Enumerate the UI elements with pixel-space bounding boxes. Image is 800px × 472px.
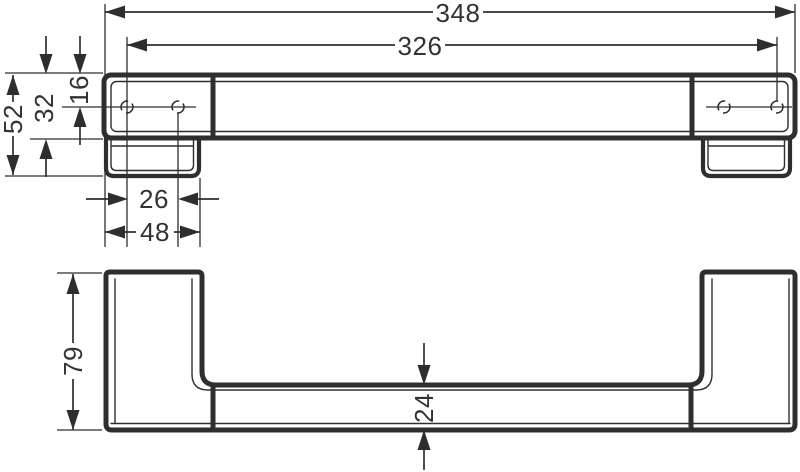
arrowhead-up [7, 75, 20, 95]
dim-52: 52 [0, 75, 28, 175]
arrowhead-down [418, 365, 431, 385]
drawing-canvas: 348 326 52 32 16 26 [0, 0, 800, 472]
arrowhead-right [757, 39, 777, 52]
arrowhead-up [40, 139, 53, 159]
dim-326-label: 326 [398, 31, 443, 61]
dim-26: 26 [86, 184, 219, 214]
dim-79: 79 [58, 274, 88, 430]
arrowhead-up [67, 274, 80, 294]
bar-inner-top-contour [192, 279, 712, 390]
dim-348-label: 348 [436, 0, 481, 28]
dim-16: 16 [64, 36, 94, 145]
dim-24: 24 [409, 343, 439, 470]
arrowhead-left [127, 39, 147, 52]
arrowhead-left [105, 226, 125, 239]
dim-326: 326 [127, 31, 777, 61]
mounting-plate-left-inner [111, 138, 194, 171]
arrowhead-right [775, 6, 795, 19]
dim-348: 348 [105, 0, 795, 28]
arrowhead-left [105, 6, 125, 19]
arrowhead-down [7, 155, 20, 175]
arrowhead-up [418, 430, 431, 450]
dim-48: 48 [105, 217, 200, 247]
dim-48-label: 48 [140, 217, 170, 247]
arrowhead-up [74, 107, 87, 127]
arrowhead-right [180, 226, 200, 239]
dim-16-label: 16 [64, 75, 94, 105]
arrowhead-down [40, 54, 53, 74]
dim-52-label: 52 [0, 104, 28, 134]
dim-32-label: 32 [29, 93, 59, 123]
mounting-plate-right-inner [708, 138, 785, 171]
dim-32: 32 [29, 36, 59, 177]
dim-79-label: 79 [58, 346, 88, 376]
dimension-drawing: 348 326 52 32 16 26 [0, 0, 800, 472]
arrowhead-right [108, 193, 128, 206]
arrowhead-left [178, 193, 198, 206]
arrowhead-down [67, 410, 80, 430]
dim-26-label: 26 [139, 184, 169, 214]
dim-24-label: 24 [409, 393, 439, 423]
arrowhead-down [74, 54, 87, 74]
